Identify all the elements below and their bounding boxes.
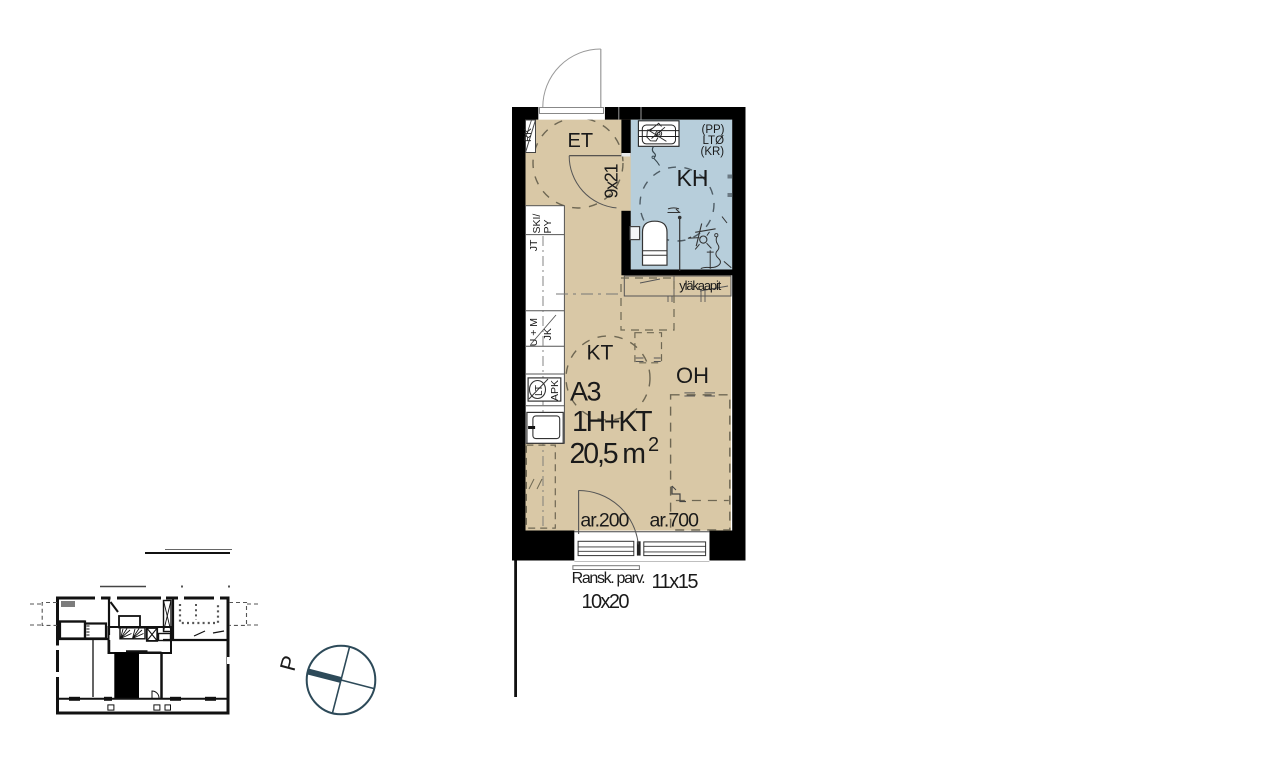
svg-text:ar.700: ar.700 — [650, 510, 700, 532]
svg-text:U + M: U + M — [528, 318, 540, 346]
svg-text:1H+KT: 1H+KT — [572, 406, 653, 438]
svg-text:PY: PY — [542, 219, 554, 233]
svg-text:RK: RK — [523, 128, 534, 142]
svg-text:ET: ET — [568, 130, 594, 152]
svg-text:A3: A3 — [570, 377, 602, 407]
svg-text:11x15: 11x15 — [652, 571, 699, 593]
svg-text:APK: APK — [549, 380, 561, 401]
svg-text:10x20: 10x20 — [582, 591, 630, 613]
svg-text:KT: KT — [587, 342, 614, 365]
svg-text:20,5 m: 20,5 m — [570, 438, 647, 470]
svg-text:9x21: 9x21 — [602, 164, 622, 199]
svg-text:KH: KH — [677, 165, 709, 191]
svg-text:OH: OH — [676, 363, 709, 388]
svg-text:yläkaapit: yläkaapit — [679, 278, 721, 293]
svg-text:JK: JK — [542, 328, 554, 340]
svg-text:Ransk. parv.: Ransk. parv. — [572, 570, 646, 587]
svg-text:ar.200: ar.200 — [580, 510, 629, 532]
svg-text:(KR): (KR) — [701, 146, 725, 158]
svg-text:JT: JT — [528, 239, 540, 251]
svg-text:LT: LT — [534, 385, 545, 396]
svg-text:2: 2 — [648, 434, 659, 456]
